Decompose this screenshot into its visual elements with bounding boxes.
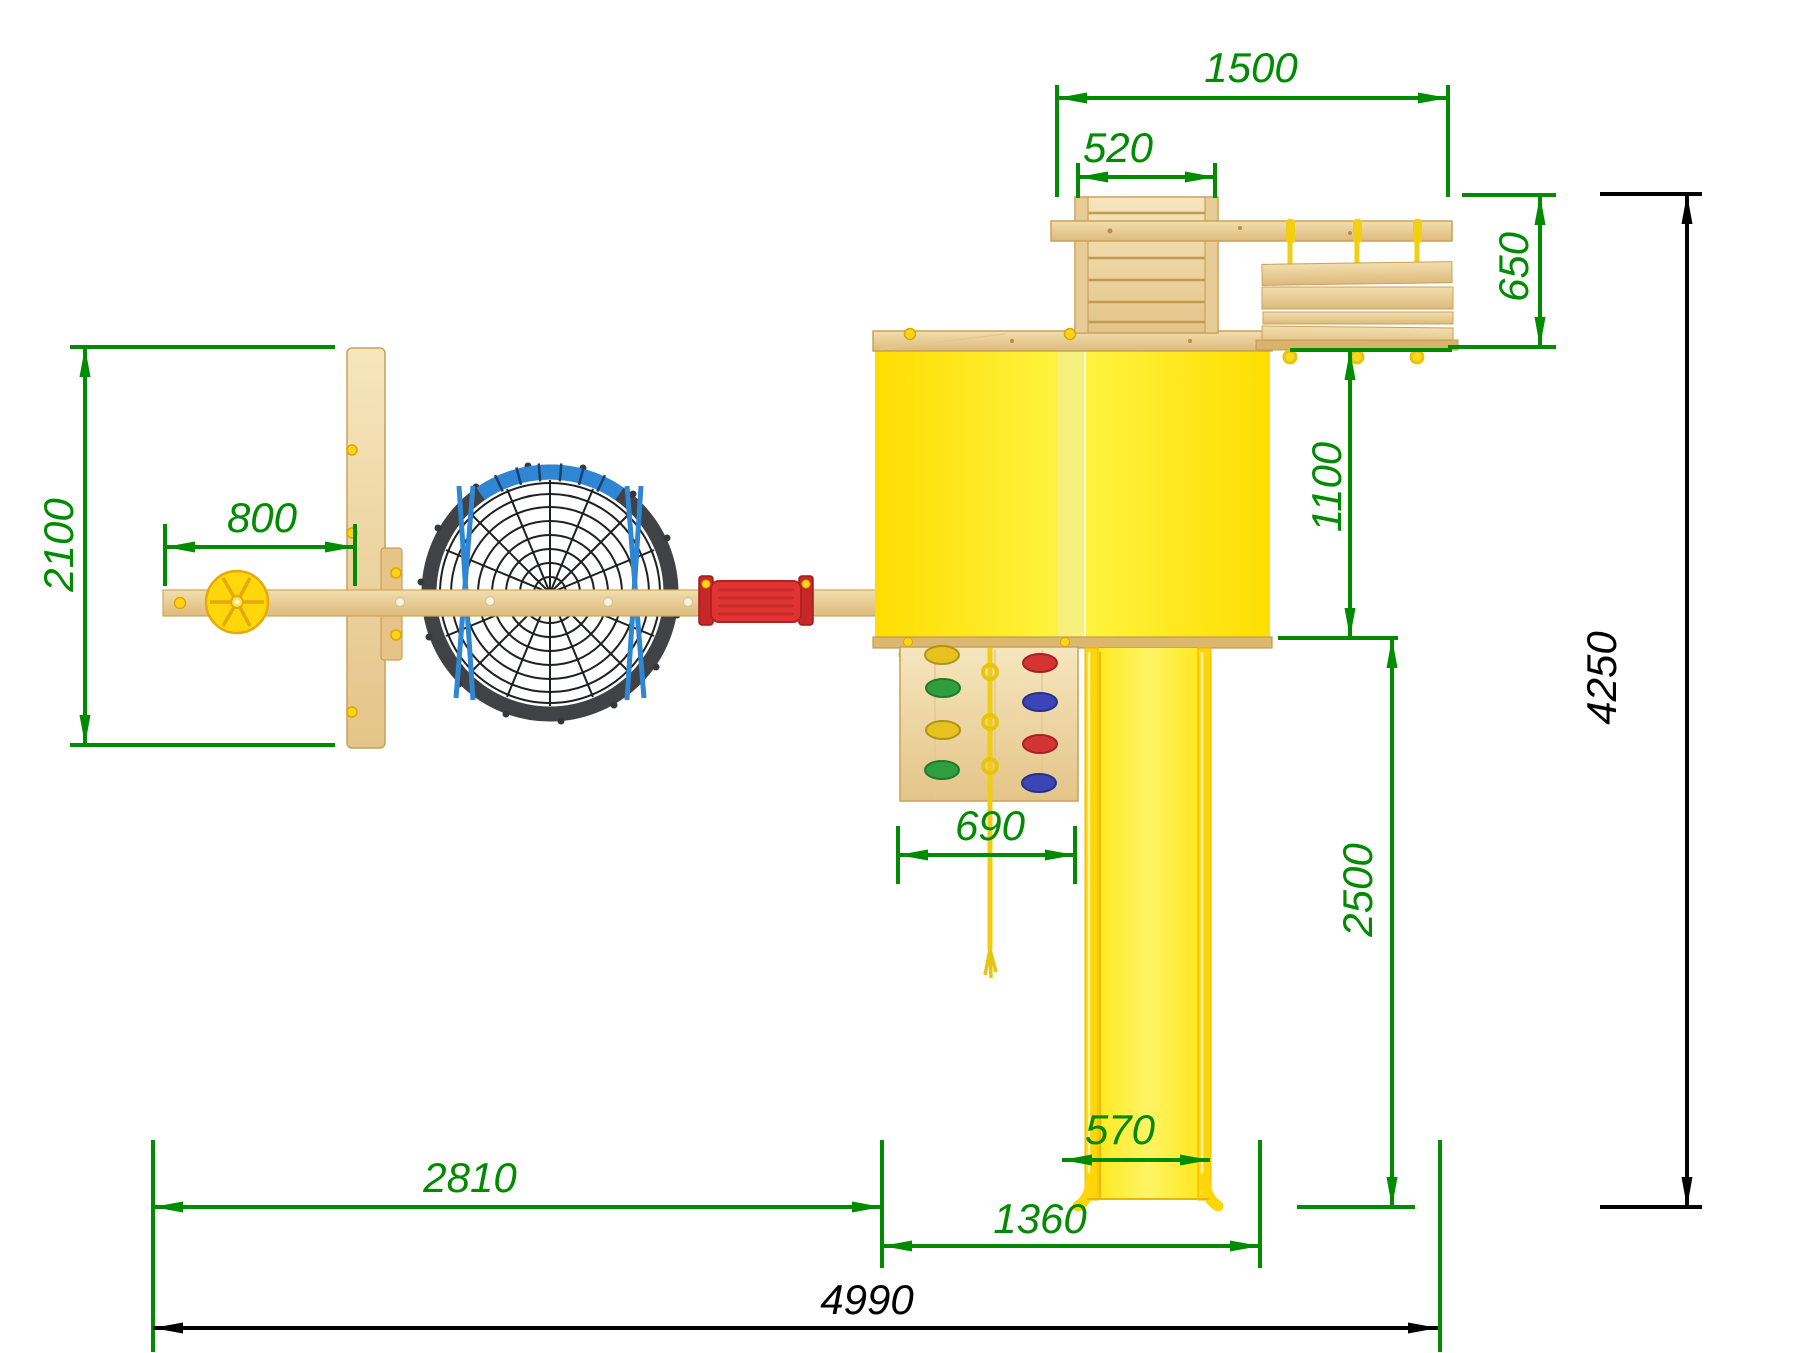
- arrowhead: [1387, 638, 1398, 668]
- dimension-label: 800: [227, 494, 298, 541]
- net-spoke: [470, 513, 550, 593]
- dimension-label: 1500: [1204, 44, 1298, 91]
- dimension-label: 4990: [820, 1276, 914, 1323]
- arrowhead: [1185, 172, 1215, 183]
- wood-knot: [1348, 231, 1352, 235]
- arrowhead: [153, 1202, 183, 1213]
- dimension-label: 1360: [993, 1195, 1087, 1242]
- dimension-label: 2810: [422, 1154, 517, 1201]
- rope-wrap: [1286, 219, 1295, 243]
- hold-blue: [1022, 774, 1056, 792]
- arrowhead: [1045, 850, 1075, 861]
- arrowhead: [898, 850, 928, 861]
- hold-green: [925, 761, 959, 779]
- arrowhead: [153, 1323, 183, 1334]
- hold-red: [1023, 654, 1057, 672]
- dimension-label: 520: [1083, 124, 1154, 171]
- tower-roof-left-slope: [875, 351, 1058, 639]
- tower-roof: [873, 329, 1272, 661]
- tie-knot: [558, 718, 565, 725]
- slide-rail-right: [1198, 648, 1211, 1200]
- arrowhead: [1345, 608, 1356, 638]
- net-spoke: [550, 513, 630, 593]
- wood-knot: [1108, 229, 1113, 234]
- wood-knot: [1010, 339, 1014, 343]
- arrowhead: [1418, 93, 1448, 104]
- arrowhead: [165, 542, 195, 553]
- hold-red: [1023, 735, 1057, 753]
- tie-knot: [418, 579, 425, 586]
- dimension-690: 690: [898, 802, 1075, 884]
- arrowhead: [1408, 1323, 1438, 1334]
- wooden-ladder: [1075, 197, 1218, 333]
- arrowhead: [1078, 172, 1108, 183]
- bench-plank: [1262, 262, 1452, 286]
- bolt-cap-yellow: [702, 580, 710, 588]
- dimension-520: 520: [1078, 124, 1215, 198]
- dimension-label: 570: [1085, 1106, 1156, 1153]
- arrowhead: [1535, 195, 1546, 225]
- hatch-line: [539, 464, 541, 482]
- bolt-cap-yellow: [904, 638, 913, 647]
- wood-knot: [1188, 339, 1192, 343]
- arrowhead: [1062, 1155, 1092, 1166]
- hanging-bench: [1256, 262, 1458, 363]
- ladder-rail-right: [1205, 197, 1218, 333]
- tie-knot: [630, 491, 637, 498]
- bolt-cap-yellow: [1061, 638, 1070, 647]
- dimension-650: 650: [1448, 195, 1556, 347]
- bolt-hole: [396, 598, 405, 607]
- bolt-cap-yellow: [391, 568, 401, 578]
- arrowhead: [80, 715, 91, 745]
- wheel-hub-bolt: [235, 600, 240, 605]
- dimension-4250: 4250: [1578, 194, 1702, 1207]
- tie-knot: [503, 711, 510, 718]
- dimension-2500: 2500: [1297, 638, 1415, 1207]
- hold-blue: [1023, 693, 1057, 711]
- bolt-cap-yellow: [347, 707, 357, 717]
- rope-knot: [1284, 351, 1296, 363]
- dimension-label: 4250: [1578, 631, 1625, 725]
- dimension-4990: 4990: [153, 1276, 1438, 1334]
- tie-knot: [653, 664, 660, 671]
- bolt-cap-yellow: [391, 630, 401, 640]
- arrowhead: [1387, 1177, 1398, 1207]
- dimension-label: 650: [1490, 231, 1537, 302]
- wood-knot: [1238, 226, 1242, 230]
- arrowhead: [852, 1202, 882, 1213]
- hold-yellow: [926, 721, 960, 739]
- hold-green: [926, 679, 960, 697]
- bench-rope-knots: [1284, 351, 1423, 363]
- rope-wrap: [1353, 219, 1362, 243]
- playground-plan-svg: 1500 520 650 1100 2500 21: [0, 0, 1800, 1353]
- flat-swing-seat: [699, 576, 813, 625]
- ladder-rail-left: [1075, 197, 1088, 333]
- dimension-label: 2500: [1334, 843, 1381, 938]
- rope-tassel: [985, 950, 996, 978]
- tower-roof-ridge: [1058, 351, 1084, 639]
- tie-knot: [664, 535, 671, 542]
- technical-drawing-canvas: 1500 520 650 1100 2500 21: [0, 0, 1800, 1353]
- bench-plank: [1262, 287, 1453, 309]
- seat-board: [711, 581, 801, 622]
- rope-knot: [1411, 351, 1423, 363]
- bolt-cap-yellow: [802, 580, 810, 588]
- dimension-label: 690: [955, 802, 1026, 849]
- tower-roof-right-slope: [1086, 351, 1270, 639]
- arrowhead: [1230, 1241, 1260, 1252]
- arrowhead: [1057, 93, 1087, 104]
- dimension-1500: 1500: [1057, 44, 1448, 197]
- steering-wheel: [206, 571, 268, 633]
- bolt-cap-yellow: [347, 445, 357, 455]
- bolt-hole: [604, 598, 613, 607]
- bolt-cap-yellow: [905, 329, 916, 340]
- dimension-label: 2100: [35, 498, 82, 593]
- bench-plank: [1263, 312, 1453, 324]
- arrowhead: [1682, 194, 1693, 224]
- tie-knot: [435, 525, 442, 532]
- bolt-cap-yellow: [1065, 329, 1076, 340]
- rope-wrap: [1413, 219, 1422, 243]
- arrowhead: [1535, 317, 1546, 347]
- arrowhead: [1682, 1177, 1693, 1207]
- dimension-label: 1100: [1303, 441, 1350, 532]
- dimension-1100: 1100: [1278, 350, 1452, 638]
- bolt-hole: [684, 598, 693, 607]
- dimension-800: 800: [165, 494, 355, 586]
- tie-knot: [426, 634, 433, 641]
- bolt-hole: [486, 597, 495, 606]
- rope-knot: [1351, 351, 1363, 363]
- bolt-cap-yellow: [175, 598, 186, 609]
- hatch-line: [560, 464, 562, 482]
- ladder-body: [1075, 197, 1218, 333]
- arrowhead: [882, 1241, 912, 1252]
- hold-yellow: [925, 646, 959, 664]
- tie-knot: [611, 702, 618, 709]
- arrowhead: [80, 347, 91, 377]
